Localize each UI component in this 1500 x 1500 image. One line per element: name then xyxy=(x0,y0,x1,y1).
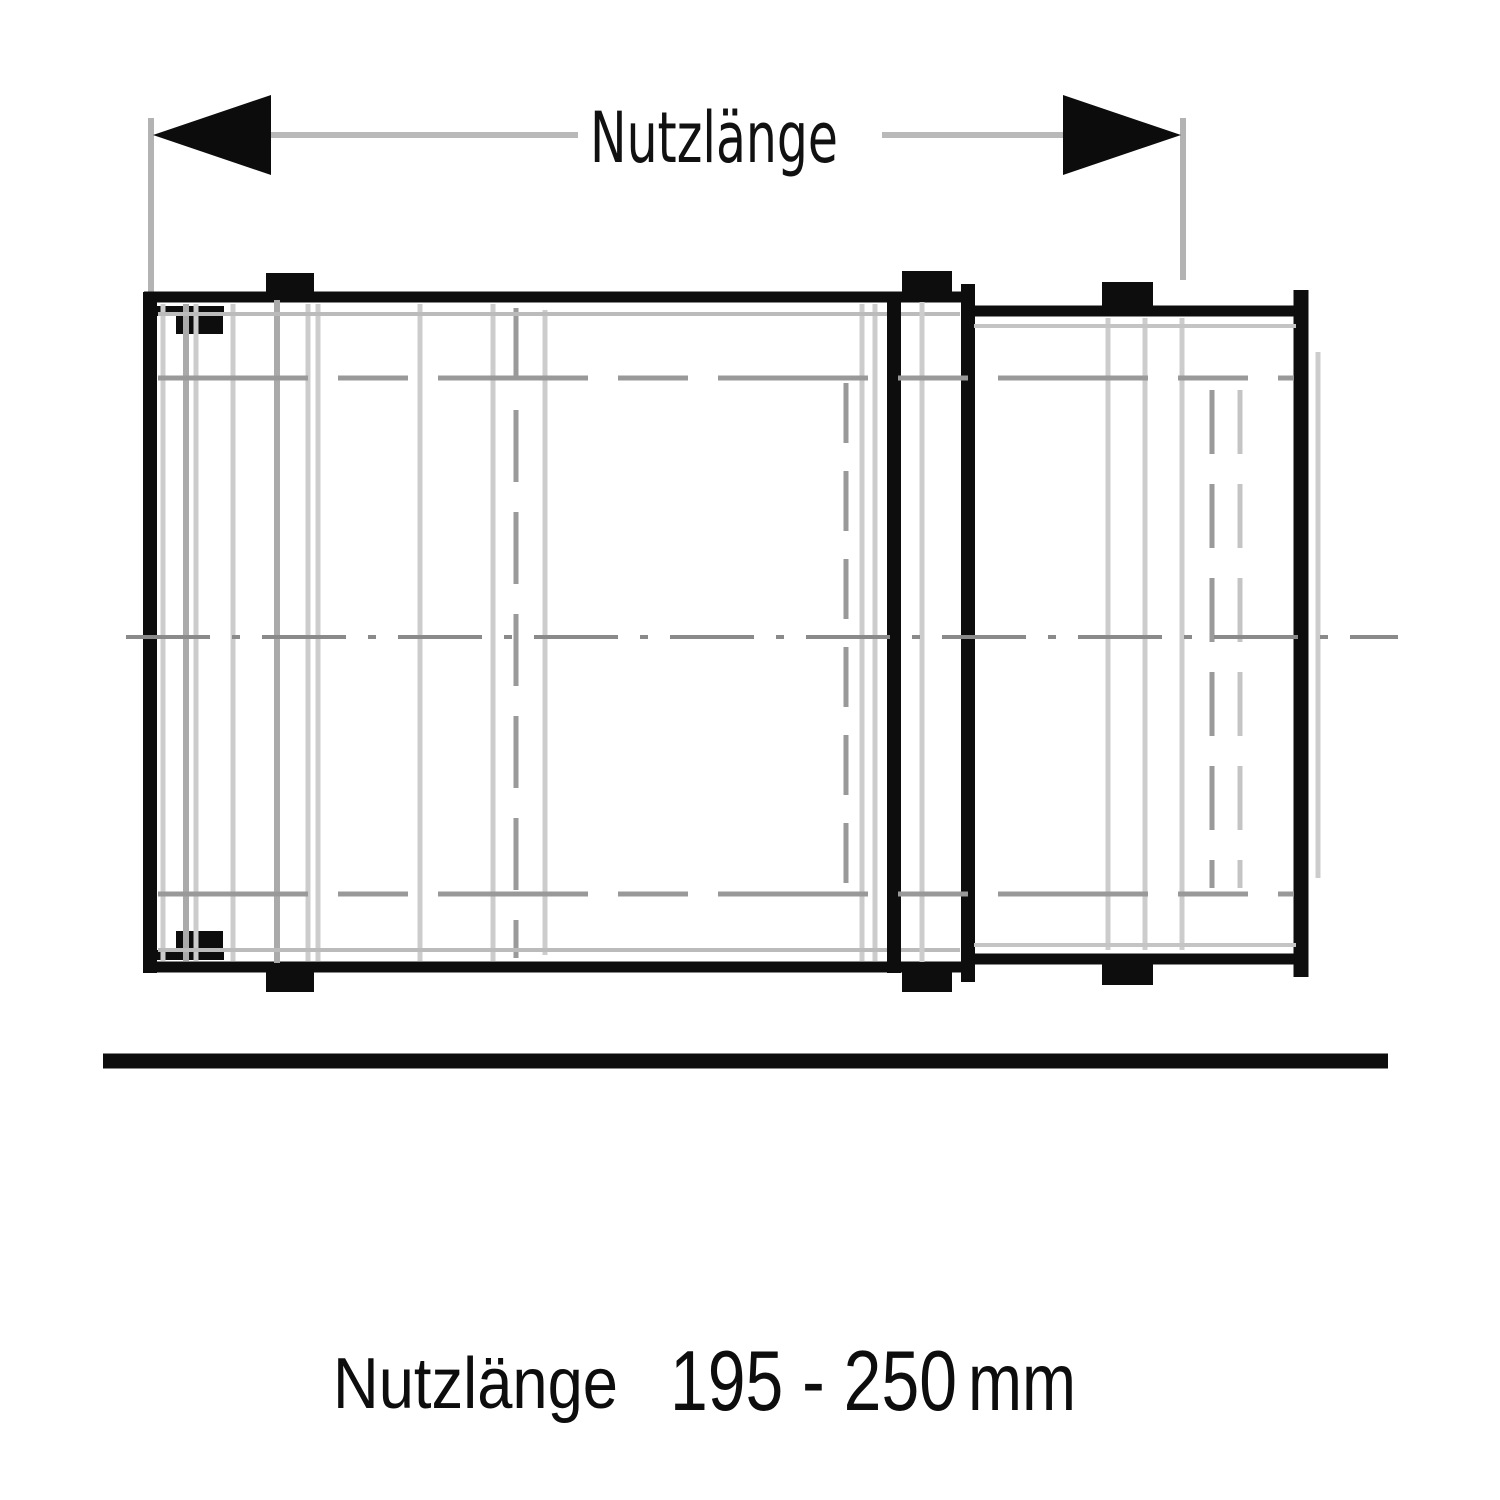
outer-pipe xyxy=(144,273,964,992)
caption-value: 195 - 250 xyxy=(670,1334,957,1429)
arrowhead-left-icon xyxy=(153,95,271,175)
arrowhead-right-icon xyxy=(1063,95,1181,175)
right-bead-top xyxy=(1102,282,1153,312)
inner-pipe xyxy=(968,282,1318,985)
junction-bead-bottom xyxy=(902,964,952,992)
telescopic-pipe-drawing xyxy=(126,271,1398,992)
technical-drawing-page: Nutzlänge xyxy=(0,0,1500,1500)
dimension-label: Nutzlänge xyxy=(590,97,838,179)
left-bead-top xyxy=(266,273,314,300)
inner-pipe-ring-lines xyxy=(1108,318,1182,950)
outer-pipe-ring-lines xyxy=(163,304,875,961)
right-bead-bottom xyxy=(1102,955,1153,985)
dimension-annotation: Nutzlänge xyxy=(151,95,1183,292)
junction-bead-top xyxy=(902,271,952,299)
caption-label: Nutzlänge xyxy=(333,1344,618,1424)
caption: Nutzlänge 195 - 250 mm xyxy=(333,1334,1076,1429)
caption-unit: mm xyxy=(968,1337,1076,1428)
pipe-drawing-svg: Nutzlänge xyxy=(0,0,1500,1500)
left-bead-bottom xyxy=(266,964,314,992)
